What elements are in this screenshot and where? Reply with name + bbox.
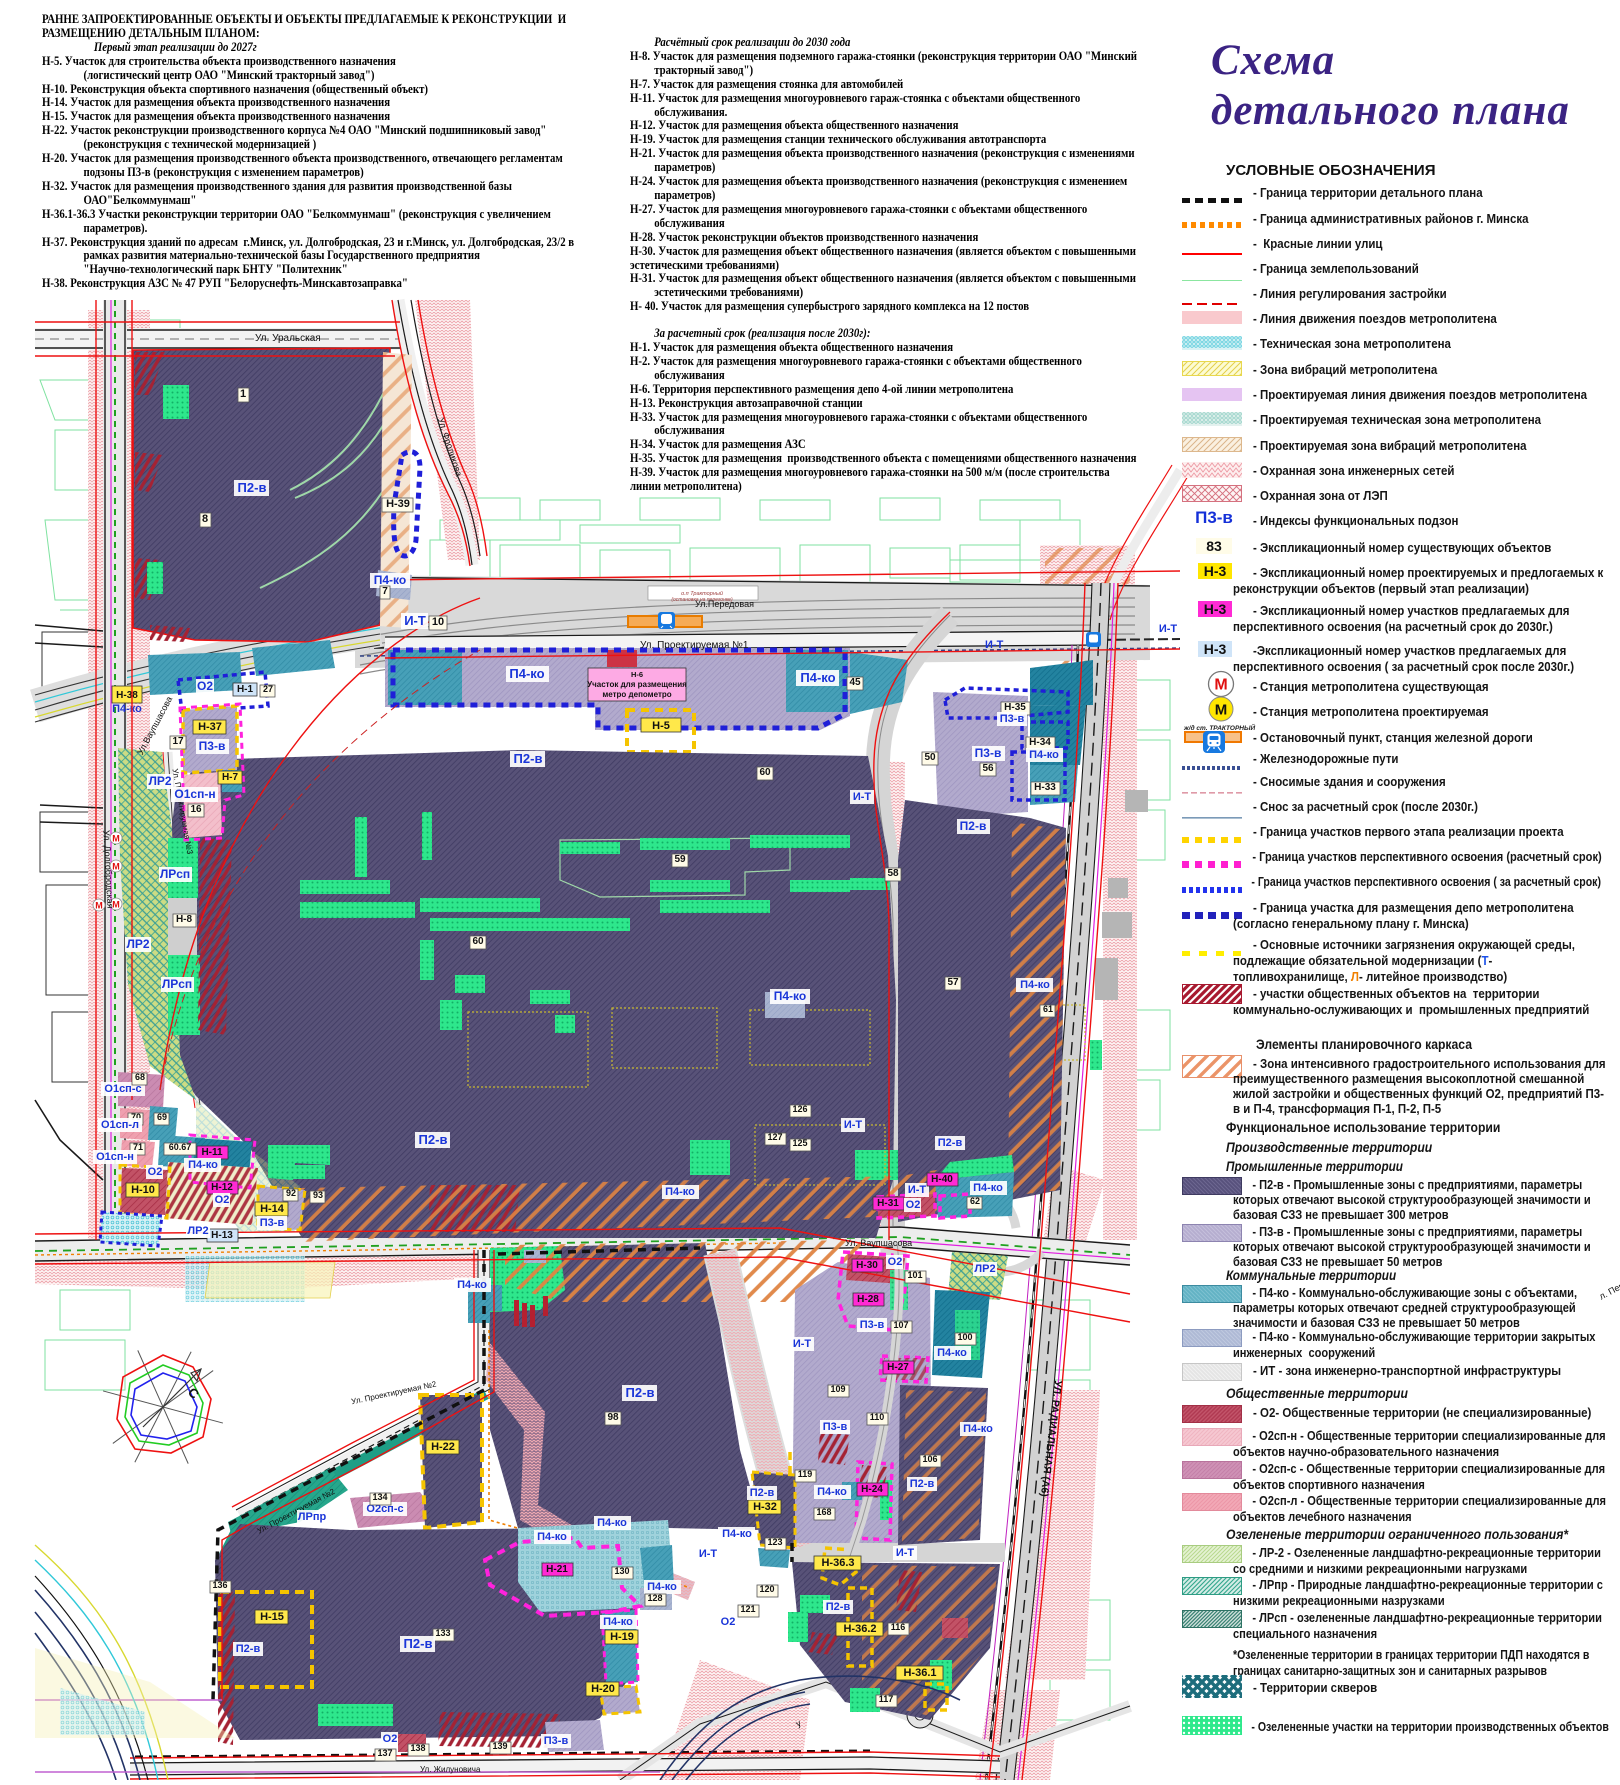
svg-text:О2: О2	[148, 1166, 163, 1178]
svg-text:Н-11: Н-11	[201, 1147, 223, 1158]
svg-text:Н-30: Н-30	[856, 1260, 878, 1271]
svg-text:Н-39: Н-39	[386, 498, 410, 510]
svg-text:Н-33: Н-33	[1034, 782, 1056, 793]
svg-text:45: 45	[849, 677, 861, 688]
svg-text:127: 127	[767, 1132, 782, 1142]
svg-text:П4-ко: П4-ко	[597, 1517, 627, 1529]
svg-text:П4-ко: П4-ко	[188, 1159, 218, 1171]
svg-text:П3-в: П3-в	[1000, 713, 1025, 725]
svg-text:93: 93	[313, 1190, 323, 1200]
svg-text:Н-28: Н-28	[857, 1294, 879, 1305]
svg-text:109: 109	[830, 1384, 845, 1394]
svg-text:П4-ко: П4-ко	[722, 1528, 752, 1540]
svg-text:137: 137	[377, 1748, 392, 1758]
svg-text:123: 123	[767, 1537, 782, 1547]
svg-text:И-Т: И-Т	[896, 1547, 915, 1559]
svg-text:62: 62	[970, 1196, 980, 1206]
svg-text:106: 106	[922, 1454, 937, 1464]
svg-text:17: 17	[172, 736, 184, 747]
svg-text:117: 117	[879, 1694, 894, 1704]
svg-text:7: 7	[382, 586, 388, 597]
svg-text:59: 59	[674, 854, 686, 865]
svg-text:И-Т: И-Т	[908, 1184, 927, 1196]
svg-text:Н-20: Н-20	[591, 1683, 615, 1695]
svg-text:100: 100	[957, 1332, 972, 1342]
svg-text:О2: О2	[383, 1733, 398, 1745]
svg-text:Н-35: Н-35	[1004, 702, 1026, 713]
svg-text:П2-в: П2-в	[910, 1478, 935, 1490]
svg-text:98: 98	[607, 1412, 619, 1423]
svg-text:Ул. Жилуновича: Ул. Жилуновича	[420, 1765, 481, 1774]
svg-text:121: 121	[740, 1604, 755, 1614]
svg-text:О2: О2	[906, 1199, 921, 1211]
svg-text:116: 116	[891, 1622, 906, 1632]
svg-text:Н-8: Н-8	[176, 914, 193, 925]
svg-text:П4-ко: П4-ко	[647, 1581, 677, 1593]
svg-text:58: 58	[887, 868, 899, 879]
svg-text:ЛР2: ЛР2	[187, 1225, 208, 1237]
svg-text:Ул.Передовая: Ул.Передовая	[695, 599, 754, 609]
svg-text:ЛР2: ЛР2	[126, 937, 149, 951]
svg-text:130: 130	[614, 1566, 629, 1576]
svg-text:П2-в: П2-в	[514, 751, 543, 766]
svg-text:60: 60	[759, 767, 771, 778]
svg-text:П4-ко: П4-ко	[973, 1182, 1003, 1194]
svg-text:Н-24: Н-24	[861, 1484, 883, 1495]
svg-text:П4-ко: П4-ко	[603, 1616, 633, 1628]
svg-text:Н-13: Н-13	[211, 1230, 233, 1241]
svg-text:92: 92	[286, 1188, 296, 1198]
svg-text:П2-в: П2-в	[626, 1385, 655, 1400]
svg-text:П3-в: П3-в	[823, 1421, 848, 1433]
svg-text:Н-5: Н-5	[652, 720, 670, 732]
svg-text:П3-в: П3-в	[975, 746, 1002, 760]
svg-text:Н-31: Н-31	[877, 1198, 899, 1209]
svg-text:ЛРсп: ЛРсп	[162, 977, 192, 991]
svg-text:Н-32: Н-32	[753, 1501, 777, 1513]
svg-text:8: 8	[202, 513, 208, 525]
svg-text:П3-в: П3-в	[544, 1735, 569, 1747]
svg-text:56: 56	[982, 763, 994, 774]
svg-text:П4-ко: П4-ко	[1020, 979, 1050, 991]
svg-text:Н-19: Н-19	[610, 1631, 634, 1643]
svg-text:О2: О2	[721, 1616, 736, 1628]
svg-text:О1сп-н: О1сп-н	[96, 1151, 134, 1163]
svg-text:П4-ко: П4-ко	[374, 573, 406, 587]
svg-text:М: М	[112, 834, 120, 844]
svg-text:П4-ко: П4-ко	[800, 670, 835, 685]
svg-text:О1сп-н: О1сп-н	[174, 787, 215, 801]
svg-text:П2-в: П2-в	[419, 1132, 448, 1147]
svg-text:М: М	[1215, 702, 1228, 719]
svg-text:60.67: 60.67	[169, 1142, 192, 1152]
svg-text:1: 1	[240, 388, 246, 400]
svg-text:П4-ко: П4-ко	[537, 1531, 567, 1543]
svg-text:134: 134	[372, 1492, 387, 1502]
svg-text:Н-36.2: Н-36.2	[843, 1623, 876, 1635]
svg-text:133: 133	[435, 1628, 450, 1638]
svg-text:П4-ко: П4-ко	[509, 666, 544, 681]
svg-text:О2: О2	[888, 1256, 903, 1268]
svg-text:Н-37: Н-37	[198, 721, 222, 733]
svg-text:Н-40: Н-40	[931, 1174, 953, 1185]
svg-text:П3-в: П3-в	[199, 739, 226, 753]
svg-text:П4-ко: П4-ко	[457, 1279, 487, 1291]
svg-text:Ул. Проектируемая №1: Ул. Проектируемая №1	[640, 640, 749, 651]
svg-text:И-Т: И-Т	[1159, 623, 1178, 635]
svg-text:М: М	[95, 901, 103, 911]
svg-text:П2-в: П2-в	[404, 1636, 433, 1651]
svg-text:Н-7: Н-7	[222, 772, 239, 783]
svg-text:М: М	[1214, 677, 1227, 694]
svg-text:138: 138	[410, 1743, 425, 1753]
svg-text:О2: О2	[197, 679, 213, 693]
svg-text:П2-в: П2-в	[938, 1137, 963, 1149]
svg-text:68: 68	[135, 1072, 145, 1082]
svg-text:Н-15: Н-15	[260, 1611, 284, 1623]
svg-text:И-Т: И-Т	[699, 1548, 718, 1560]
svg-text:128: 128	[647, 1593, 662, 1603]
svg-text:Н-22: Н-22	[431, 1441, 455, 1453]
svg-text:П2-в: П2-в	[236, 1643, 261, 1655]
svg-text:П4-ко: П4-ко	[112, 703, 142, 715]
svg-text:ЛР2: ЛР2	[148, 774, 171, 788]
svg-text:П4-ко: П4-ко	[665, 1186, 695, 1198]
svg-text:П3-в: П3-в	[260, 1217, 285, 1229]
svg-text:И-Т: И-Т	[844, 1119, 863, 1131]
svg-text:Н-6: Н-6	[631, 670, 643, 679]
svg-text:Н-27: Н-27	[887, 1362, 909, 1373]
svg-text:107: 107	[893, 1320, 908, 1330]
svg-text:о.п Тракторный: о.п Тракторный	[681, 590, 723, 597]
svg-text:П4-ко: П4-ко	[1029, 749, 1059, 761]
svg-text:Н-38: Н-38	[116, 690, 138, 701]
svg-text:П4-ко: П4-ко	[937, 1347, 967, 1359]
svg-text:50: 50	[924, 752, 936, 763]
svg-text:120: 120	[759, 1584, 774, 1594]
svg-text:69: 69	[157, 1112, 167, 1122]
svg-text:И-Т: И-Т	[853, 791, 872, 803]
svg-text:И-Т: И-Т	[404, 613, 426, 628]
svg-text:Участок для размещения: Участок для размещения	[587, 680, 687, 689]
svg-text:Н-12: Н-12	[211, 1182, 233, 1193]
svg-text:П4-ко: П4-ко	[817, 1486, 847, 1498]
svg-text:П4-ко: П4-ко	[963, 1423, 993, 1435]
svg-text:139: 139	[492, 1741, 507, 1751]
svg-text:Н-34: Н-34	[1029, 737, 1051, 748]
svg-text:И-Т: И-Т	[793, 1338, 812, 1350]
svg-text:Ул. Уральская: Ул. Уральская	[255, 333, 321, 344]
svg-text:101: 101	[907, 1270, 922, 1280]
svg-text:61: 61	[1043, 1004, 1053, 1014]
svg-text:П2-в: П2-в	[750, 1487, 775, 1499]
svg-text:16: 16	[190, 804, 202, 815]
svg-text:27: 27	[263, 684, 273, 694]
svg-text:168: 168	[816, 1507, 831, 1517]
svg-text:И-Т: И-Т	[985, 639, 1004, 651]
svg-text:метро депометро: метро депометро	[602, 690, 671, 699]
svg-text:60: 60	[472, 936, 484, 947]
svg-text:Н-14: Н-14	[260, 1203, 285, 1215]
svg-text:П4-ко: П4-ко	[774, 989, 806, 1003]
svg-text:136: 136	[212, 1580, 227, 1590]
svg-text:ЛР2: ЛР2	[974, 1263, 995, 1275]
svg-text:П2-в: П2-в	[960, 819, 987, 833]
svg-text:10: 10	[432, 616, 444, 628]
svg-text:Н-21: Н-21	[546, 1564, 568, 1575]
svg-text:П3-в: П3-в	[860, 1319, 885, 1331]
svg-text:П2-в: П2-в	[238, 480, 267, 495]
svg-text:110: 110	[870, 1412, 885, 1422]
svg-text:125: 125	[792, 1138, 807, 1148]
svg-text:П2-в: П2-в	[826, 1601, 851, 1613]
svg-text:ЛРпр: ЛРпр	[298, 1511, 327, 1523]
svg-text:126: 126	[792, 1104, 807, 1114]
svg-text:Н-10: Н-10	[131, 1184, 155, 1196]
svg-text:ЛРсп: ЛРсп	[160, 867, 190, 881]
svg-text:119: 119	[798, 1469, 813, 1479]
svg-text:О2: О2	[215, 1194, 230, 1206]
svg-text:Н-36.3: Н-36.3	[821, 1557, 854, 1569]
svg-text:Н-36.1: Н-36.1	[903, 1667, 936, 1679]
svg-text:О1сп-л: О1сп-л	[101, 1119, 139, 1131]
svg-text:57: 57	[947, 977, 959, 988]
svg-text:Н-1: Н-1	[237, 684, 254, 695]
svg-text:Ул. Ваупшасова: Ул. Ваупшасова	[845, 1238, 912, 1248]
